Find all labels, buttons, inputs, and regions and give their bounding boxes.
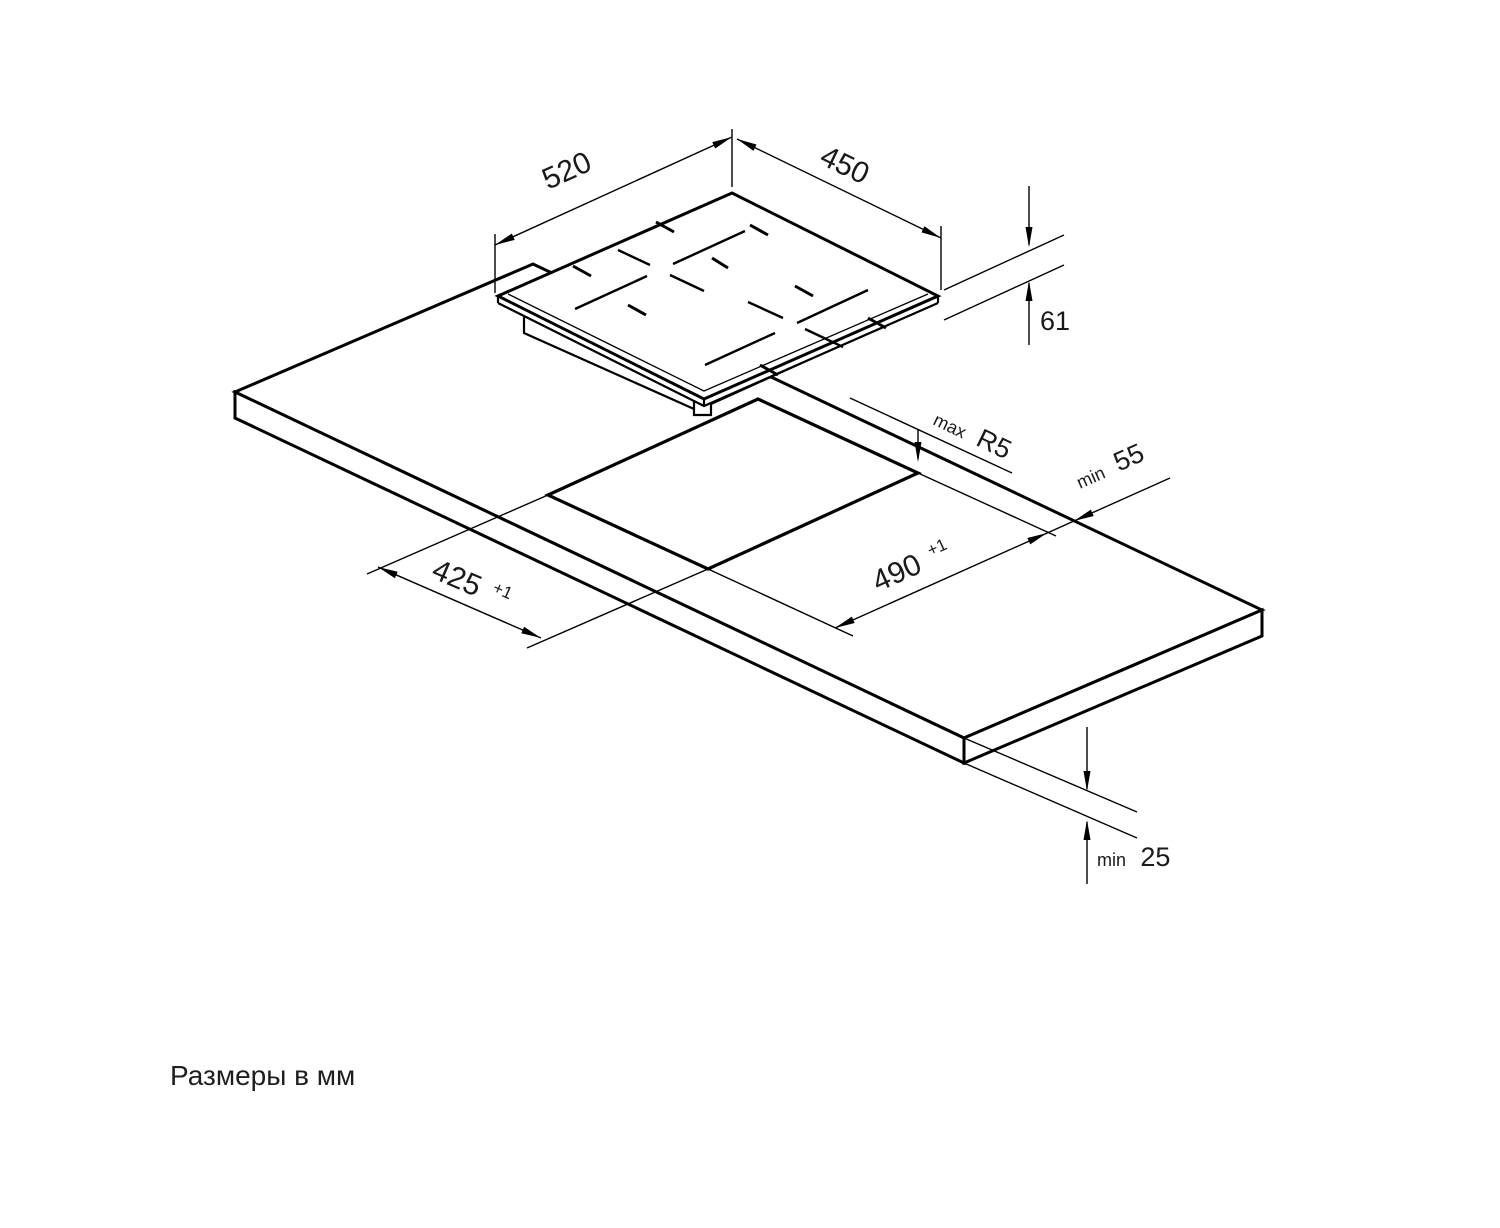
dim-450-arrow-right: [922, 226, 942, 238]
installation-diagram: 520 450 61 max R5 490: [0, 0, 1500, 1228]
dim-61: 61: [944, 186, 1070, 345]
dim-61-arrow-up: [1026, 281, 1033, 301]
min-25-arrow-down: [1084, 771, 1091, 791]
min-55-arrow: [1074, 510, 1094, 521]
dim-520-arrow-right: [712, 137, 732, 149]
dim-520-arrow-left: [495, 234, 515, 246]
installation-diagram-page: 520 450 61 max R5 490: [0, 0, 1500, 1228]
max-r5-label: max R5: [929, 401, 1017, 466]
dim-61-ext-top: [944, 235, 1064, 290]
dim-425-label: 425 +1: [427, 553, 515, 616]
dim-min-25: min 25: [964, 727, 1170, 884]
dim-61-arrow-down: [1026, 227, 1033, 247]
dim-425-arrow-right: [521, 627, 541, 638]
dim-61-label: 61: [1040, 306, 1070, 336]
min-55-label: min 55: [1069, 436, 1149, 496]
dim-425-arrow-left: [378, 567, 398, 578]
units-note: Размеры в мм: [170, 1060, 355, 1091]
dim-450-arrow-left: [737, 139, 757, 151]
dim-450-label: 450: [815, 140, 874, 191]
min-25-label: min 25: [1097, 840, 1170, 873]
min-25-arrow-up: [1084, 820, 1091, 840]
dim-520-label: 520: [537, 146, 596, 197]
